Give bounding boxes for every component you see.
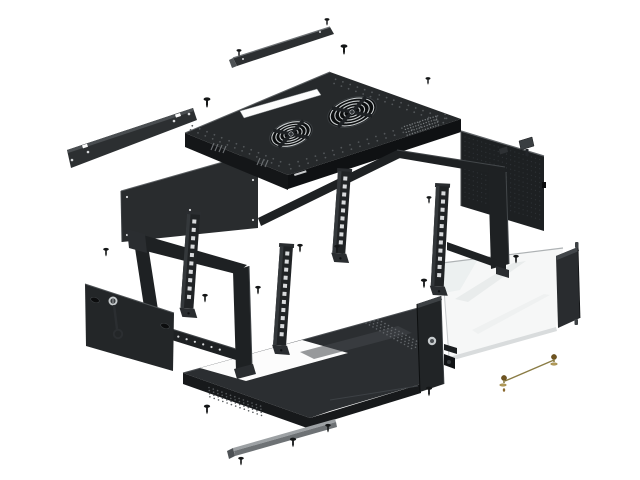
door-hinge-pillar (556, 242, 580, 328)
hinge-pin (575, 319, 579, 325)
panel-latch-notch (542, 182, 546, 188)
door-lock-badge (428, 337, 436, 345)
cam-lock (109, 297, 118, 306)
exploded-cabinet-diagram (0, 0, 640, 480)
panel-clip-pin (526, 149, 529, 156)
hinge-pin (575, 242, 579, 248)
